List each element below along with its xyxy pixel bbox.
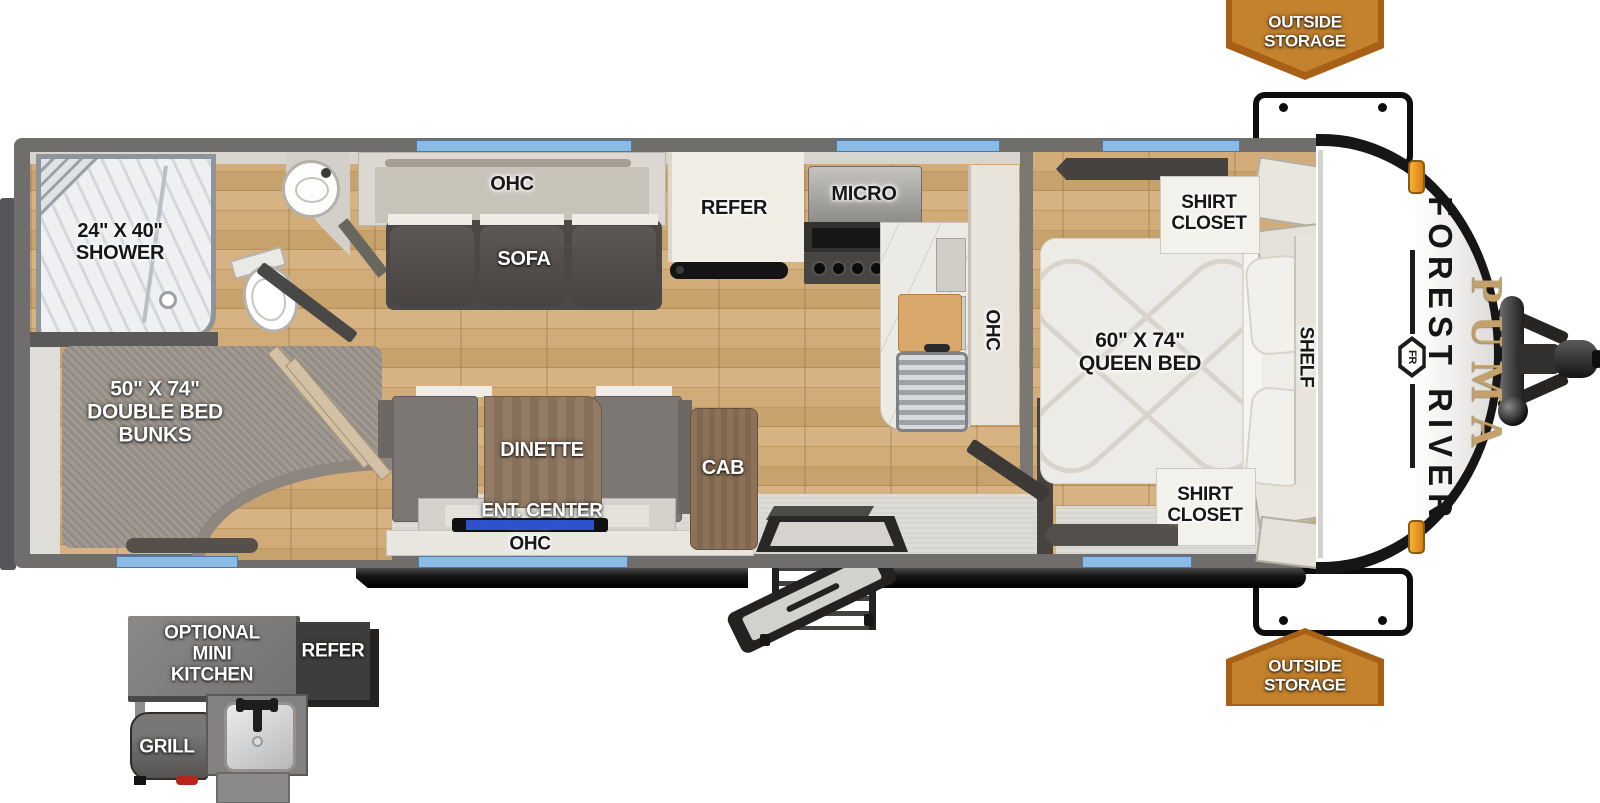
sink-basin bbox=[295, 177, 329, 203]
cabinet-door bbox=[936, 238, 966, 292]
outside-storage-banner-top: OUTSIDE STORAGE bbox=[1226, 0, 1384, 80]
kitchen-sink-icon bbox=[896, 352, 968, 432]
outside-storage-label-top: OUTSIDE STORAGE bbox=[1264, 13, 1346, 50]
handle-dot bbox=[676, 266, 684, 274]
cab-cabinet bbox=[690, 408, 758, 550]
burner-knob bbox=[850, 261, 865, 276]
bedroom-wall-upper bbox=[1020, 152, 1033, 482]
sofa-label: SOFA bbox=[497, 248, 550, 270]
left-interior-trim bbox=[30, 340, 60, 554]
window-top-kitchen bbox=[836, 140, 1000, 152]
outside-storage-label-bottom: OUTSIDE STORAGE bbox=[1264, 657, 1346, 694]
brand-dash bbox=[1410, 250, 1415, 334]
shower-head-icon bbox=[41, 159, 99, 217]
sofa-cushion bbox=[572, 226, 656, 306]
rivet-dot bbox=[1378, 103, 1387, 112]
bathroom-sink-icon bbox=[282, 160, 340, 218]
cap-seam bbox=[1318, 150, 1323, 558]
bedroom-bench bbox=[1044, 524, 1178, 546]
mini-kitchen-tab bbox=[216, 772, 290, 803]
bunk-cushion bbox=[126, 538, 258, 553]
mini-faucet-cap bbox=[236, 698, 244, 712]
chassis-tube-left bbox=[356, 566, 748, 588]
kitchen-overhead-cabinet bbox=[968, 165, 1019, 425]
ent-center-label: ENT. CENTER bbox=[481, 502, 602, 523]
manufacturer-wordmark: FOREST RIVER bbox=[1422, 196, 1458, 524]
outside-storage-banner-bottom: OUTSIDE STORAGE bbox=[1226, 628, 1384, 706]
step-foot bbox=[864, 614, 874, 626]
refrigerator-base-bar bbox=[670, 262, 788, 279]
sofa-arm-strip bbox=[388, 214, 472, 225]
floorplan-diagram: OUTSIDE STORAGE OUTSIDE STORAGE 24" X 40… bbox=[0, 0, 1600, 803]
cab-label: CAB bbox=[702, 457, 744, 479]
shirt-closet-bottom-label: SHIRT CLOSET bbox=[1167, 485, 1242, 527]
rivet-dot bbox=[1279, 616, 1288, 625]
shower-label: 24" X 40" SHOWER bbox=[76, 220, 164, 264]
burner-knob bbox=[812, 261, 827, 276]
logo-monogram: FR bbox=[1406, 350, 1418, 364]
window-bottom-bunks bbox=[116, 556, 238, 568]
sofa-cushion bbox=[390, 226, 474, 306]
mini-kitchen-label: OPTIONAL MINI KITCHEN bbox=[164, 624, 260, 687]
step-foot bbox=[760, 634, 770, 646]
window-bottom-bedroom bbox=[1082, 556, 1192, 568]
mini-faucet-cap bbox=[270, 698, 278, 712]
coupler-tip bbox=[1592, 350, 1600, 368]
refer-label: REFER bbox=[701, 197, 767, 219]
window-top-bedroom bbox=[1102, 140, 1240, 152]
entry-threshold bbox=[756, 516, 908, 552]
sink-drain-dot bbox=[252, 736, 263, 747]
brand-dash bbox=[1410, 384, 1415, 468]
burner-knob bbox=[831, 261, 846, 276]
model-wordmark: PUMA bbox=[1463, 276, 1511, 460]
mini-faucet-stem bbox=[253, 708, 262, 732]
mini-refer-label: REFER bbox=[302, 642, 365, 663]
kitchen-ohc-label: OHC bbox=[981, 309, 1002, 350]
bunks-label: 50" X 74" DOUBLE BED BUNKS bbox=[87, 377, 223, 446]
dinette-label: DINETTE bbox=[500, 439, 583, 461]
kitchen-faucet-icon bbox=[924, 344, 950, 352]
sofa-ohc-label: OHC bbox=[490, 173, 534, 195]
bathroom-wall bbox=[30, 332, 218, 347]
shirt-closet-top-label: SHIRT CLOSET bbox=[1171, 193, 1246, 235]
sofa-arm-strip bbox=[572, 214, 658, 225]
threshold-panel bbox=[770, 522, 894, 546]
shower-drain-icon bbox=[159, 291, 177, 309]
grill-label: GRILL bbox=[139, 738, 195, 759]
shelf-label: SHELF bbox=[1295, 327, 1316, 388]
window-top-sofa bbox=[416, 140, 632, 152]
grill-knob bbox=[176, 776, 198, 785]
sofa-arm-strip bbox=[480, 214, 564, 225]
ohc-handle-strip bbox=[385, 159, 631, 167]
grill-foot bbox=[134, 776, 146, 785]
rivet-dot bbox=[1378, 616, 1387, 625]
faucet-icon bbox=[321, 168, 331, 178]
marker-light-icon bbox=[1408, 160, 1425, 194]
window-bottom-dinette bbox=[418, 556, 628, 568]
queen-bed-label: 60" X 74" QUEEN BED bbox=[1079, 329, 1201, 375]
marker-light-icon bbox=[1408, 520, 1425, 554]
rivet-dot bbox=[1279, 103, 1288, 112]
micro-label: MICRO bbox=[831, 183, 896, 205]
chassis-tube-right bbox=[864, 566, 1306, 588]
lower-ohc-label: OHC bbox=[509, 535, 550, 556]
